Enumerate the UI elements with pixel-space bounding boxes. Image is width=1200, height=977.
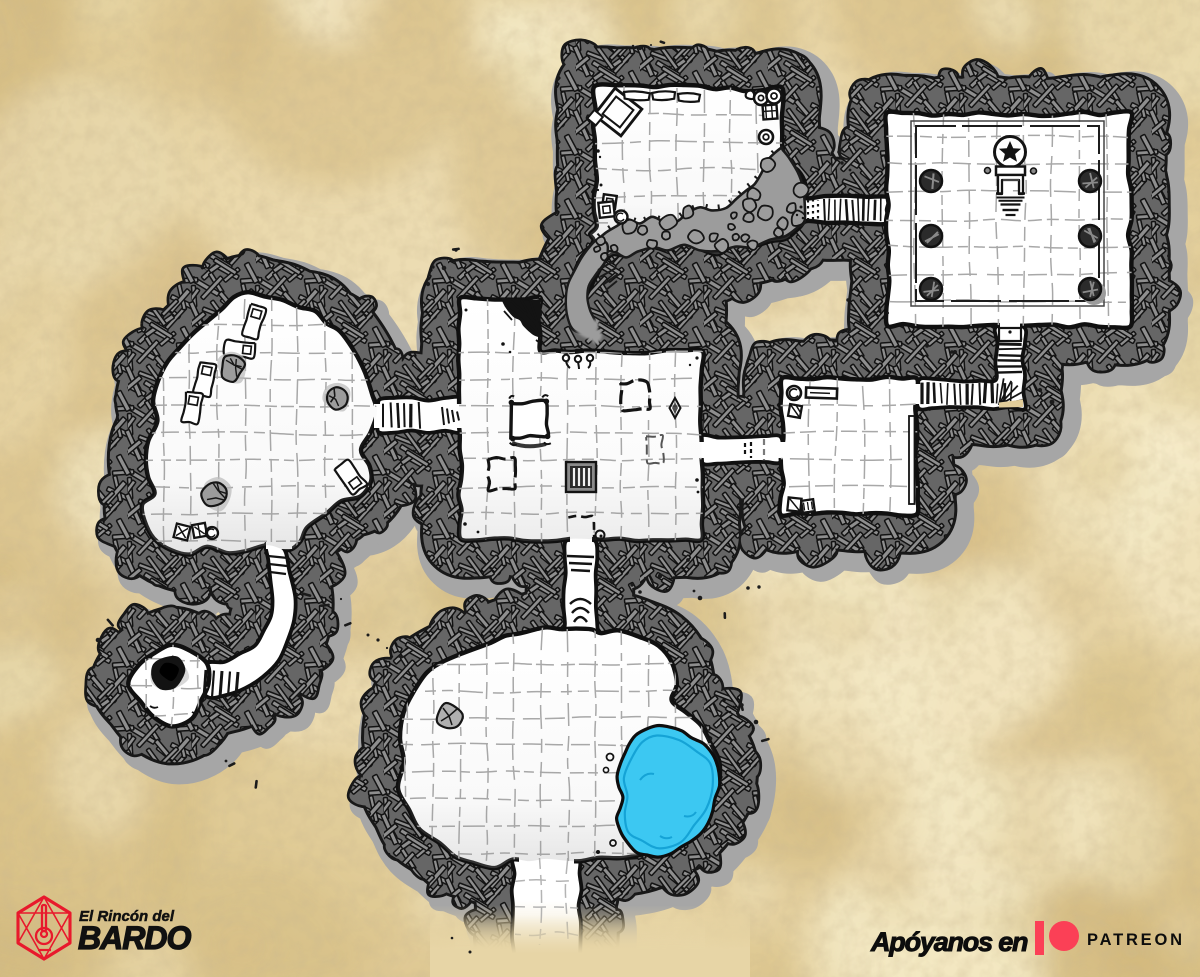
svg-text:Apóyanos en: Apóyanos en bbox=[870, 927, 1028, 957]
svg-text:BARDO: BARDO bbox=[78, 920, 191, 956]
svg-text:PATREON: PATREON bbox=[1087, 931, 1185, 949]
